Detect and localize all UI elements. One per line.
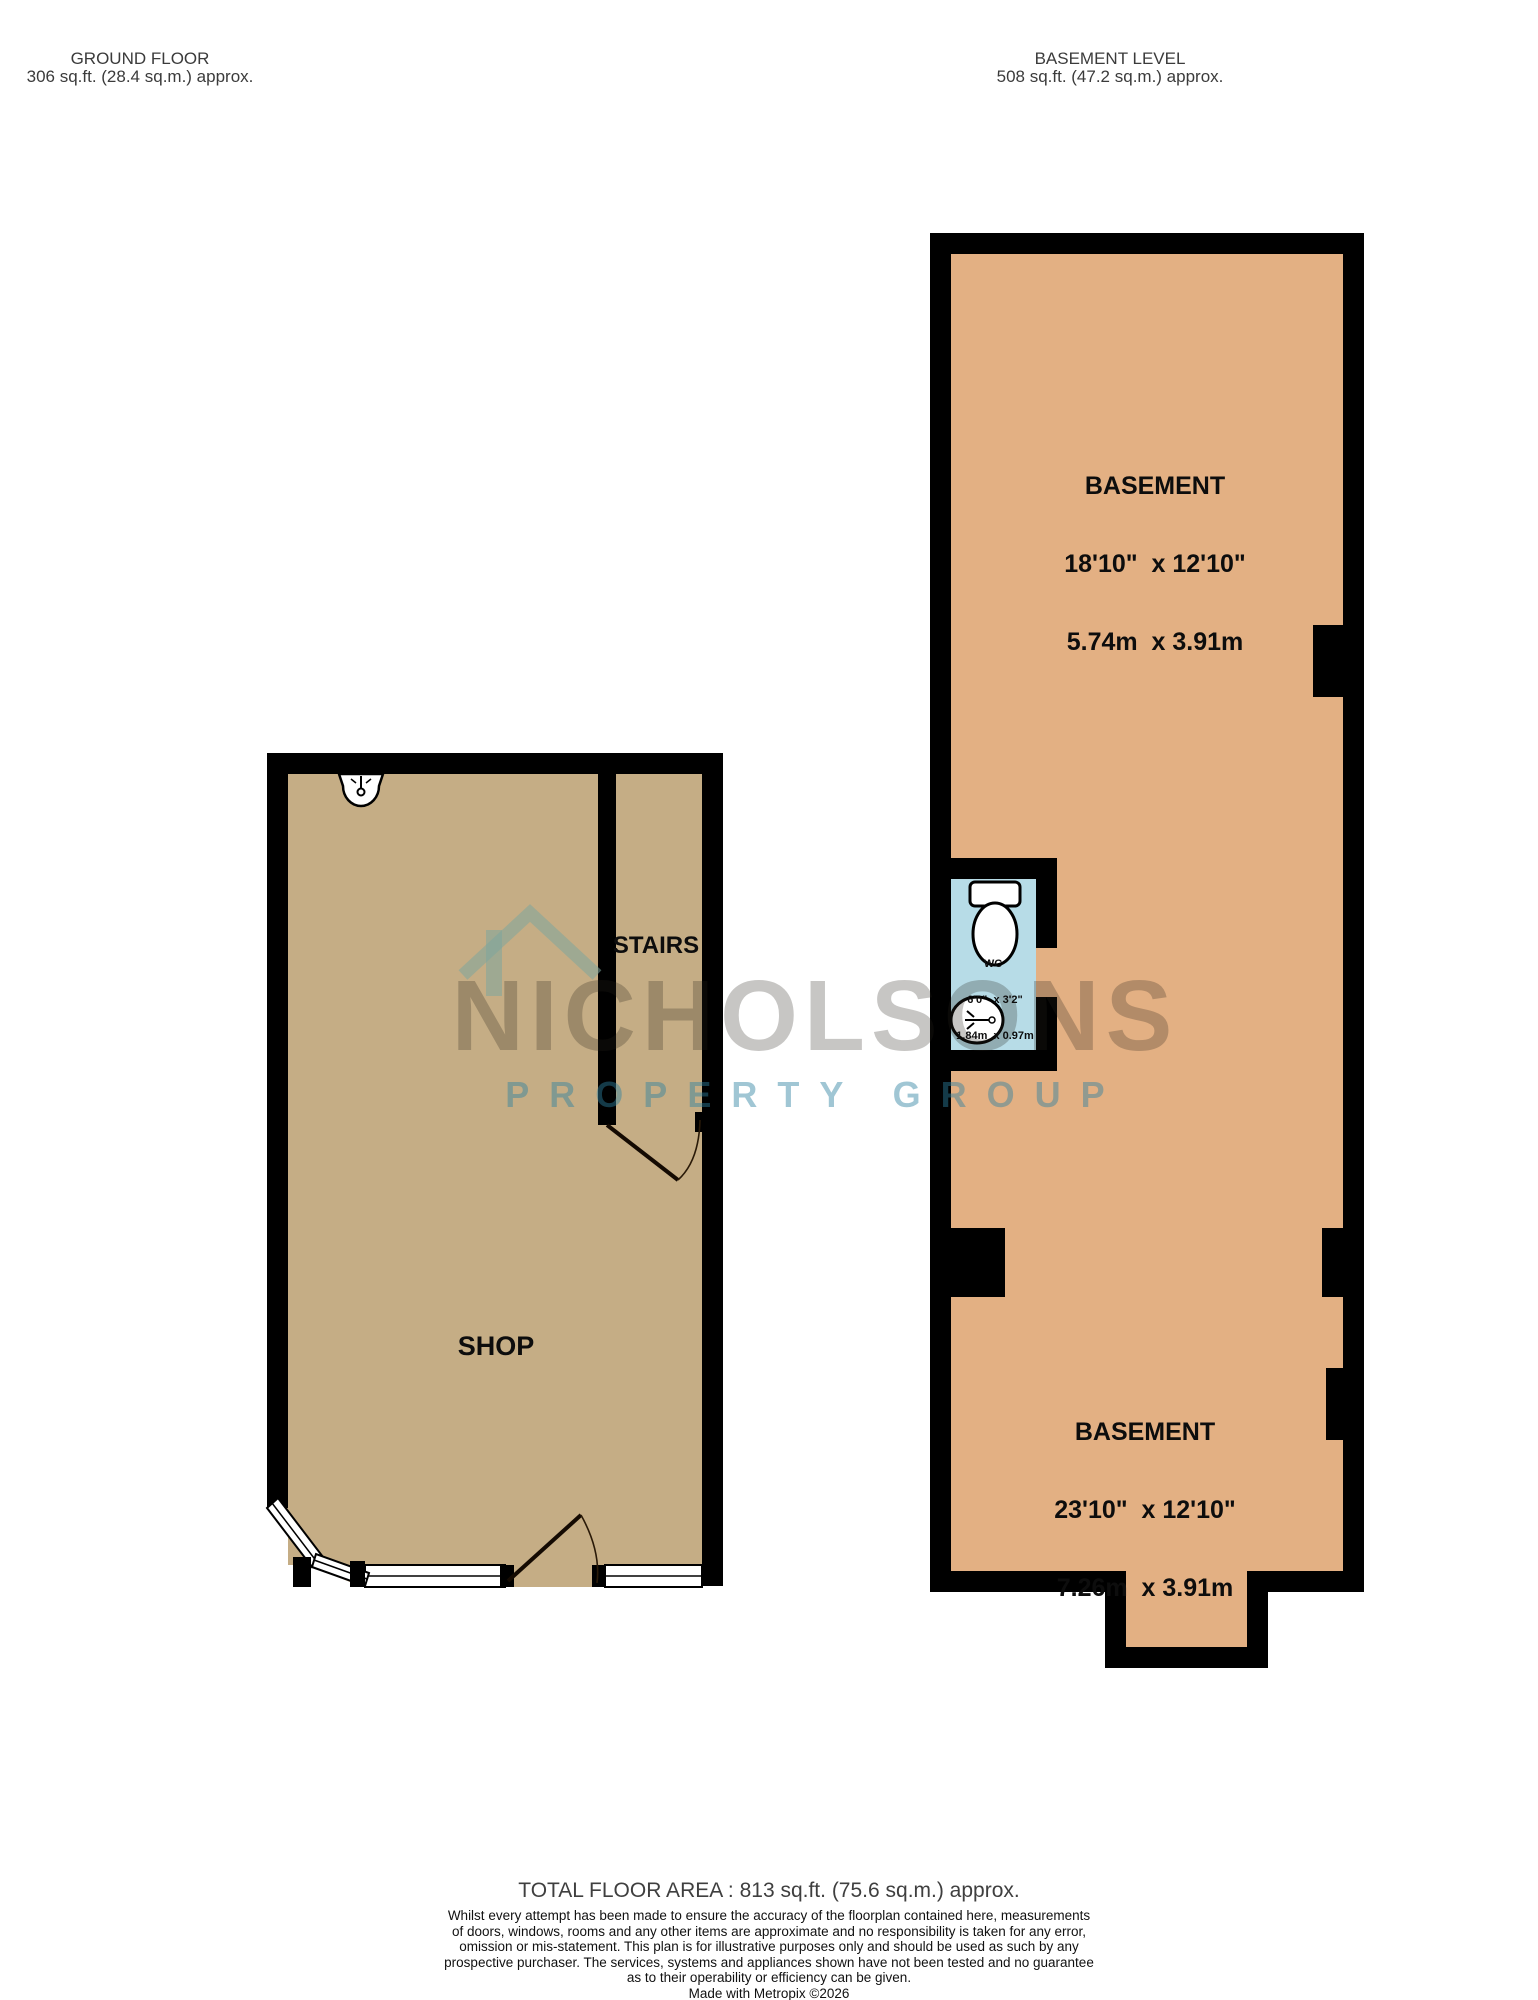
basement-wall-left [930, 233, 951, 1592]
disclaimer: Whilst every attempt has been made to en… [0, 1908, 1538, 2000]
window-left-mullion [350, 1561, 365, 1587]
ground-floor-title: GROUND FLOOR [20, 50, 260, 68]
total-floor-area: TOTAL FLOOR AREA : 813 sq.ft. (75.6 sq.m… [0, 1879, 1538, 1903]
metropix-credit: Made with Metropix ©2026 [0, 1986, 1538, 2000]
disclaimer-line-3: omission or mis-statement. This plan is … [0, 1939, 1538, 1955]
wc-metric: 1.84m x 0.97m [930, 1030, 1060, 1042]
basement-wall-nib-right-lower [1326, 1368, 1343, 1440]
basement-upper-room-label: BASEMENT 18'10" x 12'10" 5.74m x 3.91m [1005, 421, 1305, 707]
shopfront-window-left [365, 1565, 505, 1587]
shop-wall-left [267, 753, 288, 1508]
ground-floor-header: GROUND FLOOR 306 sq.ft. (28.4 sq.m.) app… [20, 50, 260, 86]
basement-wall-nib-right-upper [1313, 625, 1343, 697]
basement-wall-nib-right-middle [1322, 1228, 1343, 1297]
wc-imperial: 6'0" x 3'2" [930, 994, 1060, 1006]
ground-floorplan [255, 745, 735, 1600]
shop-floor-fill [288, 774, 702, 1565]
stairs-label: STAIRS [586, 934, 726, 958]
basement-wall-nib-left [951, 1228, 1005, 1297]
shop-wall-top [267, 753, 723, 774]
basement-lower-room-metric: 7.26m x 3.91m [995, 1575, 1295, 1601]
basement-lower-room-label: BASEMENT 23'10" x 12'10" 7.26m x 3.91m [995, 1367, 1295, 1653]
basement-level-header: BASEMENT LEVEL 508 sq.ft. (47.2 sq.m.) a… [985, 50, 1235, 86]
disclaimer-line-2: of doors, windows, rooms and any other i… [0, 1924, 1538, 1940]
entrance-door-jamb-right [592, 1565, 605, 1587]
basement-lower-room-name: BASEMENT [995, 1419, 1295, 1445]
shop-wall-right [702, 753, 723, 1586]
disclaimer-line-1: Whilst every attempt has been made to en… [0, 1908, 1538, 1924]
basement-wall-right [1343, 233, 1364, 1592]
basement-level-area: 508 sq.ft. (47.2 sq.m.) approx. [985, 68, 1235, 86]
basement-upper-room-imperial: 18'10" x 12'10" [1005, 551, 1305, 577]
basement-upper-room-name: BASEMENT [1005, 473, 1305, 499]
basement-level-title: BASEMENT LEVEL [985, 50, 1235, 68]
wc-wall-right-upper [1036, 858, 1057, 948]
floorplan-page: GROUND FLOOR 306 sq.ft. (28.4 sq.m.) app… [0, 0, 1538, 2000]
wc-room-label: WC [960, 958, 1026, 970]
basement-upper-room-metric: 5.74m x 3.91m [1005, 629, 1305, 655]
toilet-icon [970, 882, 1020, 965]
disclaimer-line-4: prospective purchaser. The services, sys… [0, 1955, 1538, 1971]
ground-floor-area: 306 sq.ft. (28.4 sq.m.) approx. [20, 68, 260, 86]
shopfront-window-right [605, 1565, 702, 1587]
wc-dimensions-label: 6'0" x 3'2" 1.84m x 0.97m [930, 970, 1060, 1066]
watermark-tagline: PROPERTY GROUP [400, 1074, 1230, 1116]
shop-label: SHOP [396, 1331, 596, 1362]
watermark-brand: NICHOLSONS [400, 968, 1230, 1064]
bay-window-mullion [293, 1557, 311, 1587]
basement-lower-room-imperial: 23'10" x 12'10" [995, 1497, 1295, 1523]
disclaimer-line-5: as to their operability or efficiency ca… [0, 1970, 1538, 1986]
basement-wall-top [930, 233, 1364, 254]
